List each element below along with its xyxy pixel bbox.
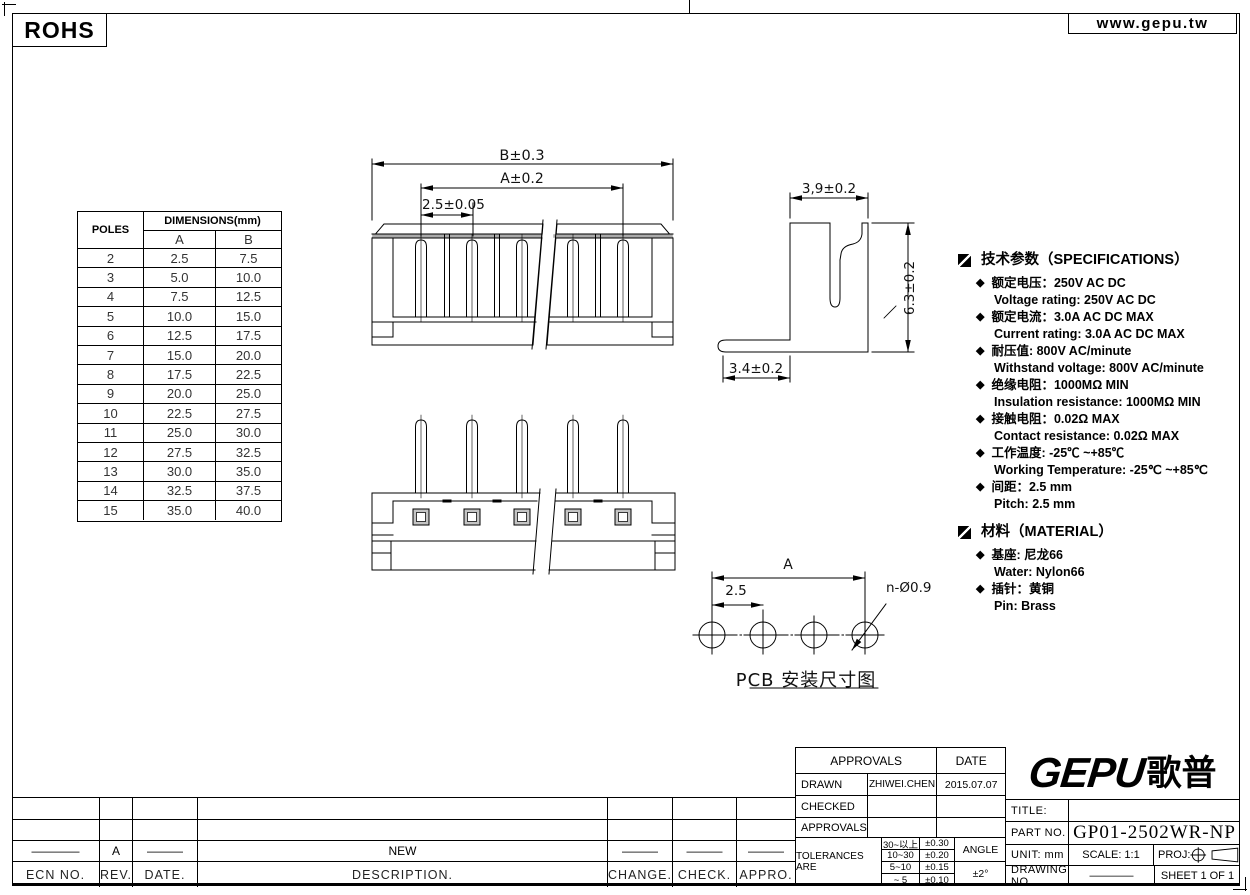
revision-value-cell: ———— xyxy=(12,841,100,862)
drawing-sheet: ROHS www.gepu.tw POLES DIMENSIONS(mm) A … xyxy=(0,0,1250,895)
revision-header-cell: DESCRIPTION. xyxy=(198,862,608,887)
poles-cell: 14 xyxy=(78,482,144,501)
material-title: 材料（MATERIAL） xyxy=(981,524,1113,541)
pcb-layout-caption: PCB 安装尺寸图 xyxy=(716,666,896,692)
tolerance-range-cell: 5~10 xyxy=(881,862,919,874)
spec-text-zh: 插针：黄铜 xyxy=(991,581,1054,598)
column-header-dimensions: DIMENSIONS(mm) xyxy=(144,212,281,231)
spec-text-en: Working Temperature: -25℃ ~+85℃ xyxy=(994,462,1248,479)
dim-label-front-pitch: 2.5±0.05 xyxy=(422,197,485,213)
spec-line-zh: ◆额定电流：3.0A AC DC MAX xyxy=(976,309,1248,326)
revision-value-cell: ——— xyxy=(737,841,795,862)
approvals-date xyxy=(937,818,1005,837)
gepu-logo: GEPU 歌普 xyxy=(1006,747,1240,800)
spec-text-zh: 耐压值: 800V AC/minute xyxy=(991,343,1131,360)
dim-a-cell: 35.0 xyxy=(144,501,216,520)
spec-line-zh: ◆插针：黄铜 xyxy=(976,581,1248,598)
revision-empty-cell xyxy=(673,798,737,820)
spec-line-zh: ◆接触电阻：0.02Ω MAX xyxy=(976,411,1248,428)
section-marker-icon xyxy=(958,254,971,267)
dim-b-cell: 22.5 xyxy=(216,365,281,384)
diamond-bullet-icon: ◆ xyxy=(976,309,984,326)
logo-text-en: GEPU xyxy=(1027,752,1146,794)
spec-text-en: Water: Nylon66 xyxy=(994,564,1248,581)
spec-item: ◆额定电压：250V AC DCVoltage rating: 250V AC … xyxy=(976,275,1248,309)
revision-header-cell: ECN NO. xyxy=(12,862,100,887)
connector-front-view xyxy=(372,159,673,349)
dim-a-cell: 7.5 xyxy=(144,288,216,307)
tolerance-range-cell: ~ 5 xyxy=(881,874,919,886)
spec-item: ◆额定电流：3.0A AC DC MAXCurrent rating: 3.0A… xyxy=(976,309,1248,343)
diamond-bullet-icon: ◆ xyxy=(976,377,984,394)
column-header-poles: POLES xyxy=(78,212,144,249)
revision-empty-cell xyxy=(133,820,198,841)
corner-mark xyxy=(4,2,5,16)
tolerance-range-cell: 30~以上 xyxy=(881,838,919,850)
title-block: GEPU 歌普 TITLE: PART NO. GP01-2502WR-NP U… xyxy=(1005,747,1240,886)
poles-cell: 5 xyxy=(78,307,144,326)
title-value xyxy=(1069,800,1240,821)
dim-label-side-depth: 3,9±0.2 xyxy=(779,181,879,197)
dim-label-side-pin-length: 3.4±0.2 xyxy=(706,361,806,377)
website-label: www.gepu.tw xyxy=(1097,15,1209,32)
poles-cell: 12 xyxy=(78,443,144,462)
spec-text-zh: 工作温度: -25℃ ~+85℃ xyxy=(991,445,1124,462)
tolerance-value-cell: ±0.15 xyxy=(919,862,954,874)
pin-view-pins xyxy=(416,415,629,498)
dim-a-cell: 20.0 xyxy=(144,385,216,404)
diamond-bullet-icon: ◆ xyxy=(976,343,984,360)
material-header: 材料（MATERIAL） xyxy=(958,524,1248,541)
approvals-by xyxy=(868,818,938,837)
poles-cell: 6 xyxy=(78,327,144,346)
date-header: DATE xyxy=(937,748,1005,773)
revision-header-cell: CHECK. xyxy=(673,862,737,887)
spec-item: ◆基座: 尼龙66Water: Nylon66 xyxy=(976,547,1248,581)
dim-a-cell: 15.0 xyxy=(144,346,216,365)
connector-side-view xyxy=(718,193,914,382)
spec-text-en: Voltage rating: 250V AC DC xyxy=(994,292,1248,309)
revision-empty-cell xyxy=(608,820,673,841)
revision-value-cell: ——— xyxy=(133,841,198,862)
angle-tolerance: ANGLE ±2° xyxy=(954,838,1006,886)
spec-line-zh: ◆工作温度: -25℃ ~+85℃ xyxy=(976,445,1248,462)
revision-empty-cell xyxy=(100,820,133,841)
diamond-bullet-icon: ◆ xyxy=(976,411,984,428)
tolerance-range-cell: 10~30 xyxy=(881,850,919,862)
drawing-no-label: DRAWING NO. xyxy=(1006,866,1069,886)
rohs-badge: ROHS xyxy=(12,13,107,47)
spec-item: ◆插针：黄铜Pin: Brass xyxy=(976,581,1248,615)
dim-b-cell: 17.5 xyxy=(216,327,281,346)
column-header-b: B xyxy=(216,231,281,249)
dim-b-cell: 15.0 xyxy=(216,307,281,326)
tolerances-label: TOLERANCES ARE xyxy=(796,838,881,886)
revision-header-cell: CHANGE. xyxy=(608,862,673,887)
spec-line-zh: ◆间距：2.5 mm xyxy=(976,479,1248,496)
dim-a-cell: 2.5 xyxy=(144,249,216,268)
specifications-list: ◆额定电压：250V AC DCVoltage rating: 250V AC … xyxy=(958,275,1248,513)
dim-label-side-height: 6.3±0.2 xyxy=(902,248,918,328)
spec-text-zh: 基座: 尼龙66 xyxy=(991,547,1063,564)
drawn-label: DRAWN xyxy=(796,774,868,795)
dim-a-cell: 30.0 xyxy=(144,462,216,481)
specifications-title: 技术参数（SPECIFICATIONS） xyxy=(981,252,1189,269)
material-list: ◆基座: 尼龙66Water: Nylon66◆插针：黄铜Pin: Brass xyxy=(958,547,1248,615)
dim-label-pcb-span: A xyxy=(758,557,818,573)
dim-b-cell: 7.5 xyxy=(216,249,281,268)
proj-label: PROJ: xyxy=(1158,849,1190,861)
column-header-a: A xyxy=(144,231,216,249)
spec-text-zh: 间距：2.5 mm xyxy=(991,479,1072,496)
dim-b-cell: 12.5 xyxy=(216,288,281,307)
spec-line-zh: ◆基座: 尼龙66 xyxy=(976,547,1248,564)
center-mark xyxy=(689,0,690,13)
spec-text-en: Pin: Brass xyxy=(994,598,1248,615)
spec-line-zh: ◆耐压值: 800V AC/minute xyxy=(976,343,1248,360)
dim-label-front-width: B±0.3 xyxy=(432,148,612,164)
revision-empty-cell xyxy=(198,820,608,841)
revision-empty-cell xyxy=(133,798,198,820)
dim-b-cell: 20.0 xyxy=(216,346,281,365)
revision-empty-cell xyxy=(12,798,100,820)
tolerances-grid: 30~以上±0.3010~30±0.205~10±0.15~ 5±0.10 xyxy=(881,838,954,886)
revision-empty-cell xyxy=(673,820,737,841)
projection-cell: PROJ: xyxy=(1154,845,1240,865)
poles-cell: 2 xyxy=(78,249,144,268)
spec-text-en: Current rating: 3.0A AC DC MAX xyxy=(994,326,1248,343)
revision-value-cell: ——— xyxy=(673,841,737,862)
angle-value: ±2° xyxy=(955,862,1006,886)
unit-label: UNIT: mm xyxy=(1006,845,1069,865)
dim-b-cell: 25.0 xyxy=(216,385,281,404)
spec-text-zh: 接触电阻：0.02Ω MAX xyxy=(991,411,1119,428)
part-number: GP01-2502WR-NP xyxy=(1069,822,1240,844)
spec-line-zh: ◆额定电压：250V AC DC xyxy=(976,275,1248,292)
tolerance-value-cell: ±0.20 xyxy=(919,850,954,862)
revision-value-cell: ——— xyxy=(608,841,673,862)
revision-table: ————A———NEW—————————ECN NO.REV.DATE.DESC… xyxy=(12,797,795,886)
poles-dimensions-table: POLES DIMENSIONS(mm) A B 22.57.535.010.0… xyxy=(77,211,282,522)
dim-b-cell: 27.5 xyxy=(216,404,281,423)
diamond-bullet-icon: ◆ xyxy=(976,547,984,564)
dim-b-cell: 10.0 xyxy=(216,268,281,287)
checked-date xyxy=(937,796,1005,817)
spec-text-en: Pitch: 2.5 mm xyxy=(994,496,1248,513)
dim-a-cell: 25.0 xyxy=(144,424,216,443)
tolerance-value-cell: ±0.30 xyxy=(919,838,954,850)
drawn-by: ZHIWEI.CHEN xyxy=(868,774,938,795)
revision-header-cell: DATE. xyxy=(133,862,198,887)
revision-empty-cell xyxy=(737,820,795,841)
corner-mark xyxy=(1245,877,1246,891)
dim-b-cell: 35.0 xyxy=(216,462,281,481)
spec-item: ◆间距：2.5 mmPitch: 2.5 mm xyxy=(976,479,1248,513)
diamond-bullet-icon: ◆ xyxy=(976,479,984,496)
spec-line-zh: ◆绝缘电阻：1000MΩ MIN xyxy=(976,377,1248,394)
checked-by xyxy=(868,796,938,817)
poles-table-body: 22.57.535.010.047.512.5510.015.0612.517.… xyxy=(78,249,281,520)
revision-empty-cell xyxy=(608,798,673,820)
spec-text-en: Insulation resistance: 1000MΩ MIN xyxy=(994,394,1248,411)
revision-value-cell: NEW xyxy=(198,841,608,862)
diamond-bullet-icon: ◆ xyxy=(976,275,984,292)
poles-cell: 3 xyxy=(78,268,144,287)
dim-b-cell: 37.5 xyxy=(216,482,281,501)
sheet-label: SHEET 1 OF 1 xyxy=(1155,866,1240,886)
front-view-pins xyxy=(416,234,629,322)
dim-a-cell: 22.5 xyxy=(144,404,216,423)
revision-empty-cell xyxy=(737,798,795,820)
revision-empty-cell xyxy=(100,798,133,820)
spec-text-zh: 额定电压：250V AC DC xyxy=(991,275,1125,292)
specifications-header: 技术参数（SPECIFICATIONS） xyxy=(958,252,1248,269)
dim-b-cell: 32.5 xyxy=(216,443,281,462)
pin-view-holes xyxy=(413,509,631,525)
spec-text-zh: 绝缘电阻：1000MΩ MIN xyxy=(991,377,1128,394)
poles-cell: 4 xyxy=(78,288,144,307)
angle-label: ANGLE xyxy=(955,838,1006,862)
tolerances-table: TOLERANCES ARE 30~以上±0.3010~30±0.205~10±… xyxy=(795,838,1005,886)
poles-cell: 9 xyxy=(78,385,144,404)
rohs-label: ROHS xyxy=(24,17,94,44)
revision-header-cell: REV. xyxy=(100,862,133,887)
poles-cell: 13 xyxy=(78,462,144,481)
technical-drawings xyxy=(350,140,960,710)
diamond-bullet-icon: ◆ xyxy=(976,445,984,462)
dim-label-front-pin-span: A±0.2 xyxy=(432,171,612,187)
tolerance-value-cell: ±0.10 xyxy=(919,874,954,886)
revision-value-cell: A xyxy=(100,841,133,862)
part-no-label: PART NO. xyxy=(1006,822,1069,844)
dim-label-pcb-pitch: 2.5 xyxy=(710,583,762,599)
projection-symbol xyxy=(1190,846,1240,864)
logo-text-zh: 歌普 xyxy=(1147,756,1217,791)
revision-empty-cell xyxy=(12,820,100,841)
dim-a-cell: 27.5 xyxy=(144,443,216,462)
scale-label: SCALE: 1:1 xyxy=(1069,845,1154,865)
checked-label: CHECKED xyxy=(796,796,868,817)
spec-item: ◆接触电阻：0.02Ω MAXContact resistance: 0.02Ω… xyxy=(976,411,1248,445)
dim-b-cell: 40.0 xyxy=(216,501,281,520)
spec-text-en: Contact resistance: 0.02Ω MAX xyxy=(994,428,1248,445)
approvals-table: APPROVALS DATE DRAWN ZHIWEI.CHEN 2015.07… xyxy=(795,747,1005,838)
dim-a-cell: 32.5 xyxy=(144,482,216,501)
dim-b-cell: 30.0 xyxy=(216,424,281,443)
dim-a-cell: 17.5 xyxy=(144,365,216,384)
drawn-date: 2015.07.07 xyxy=(937,774,1005,795)
spec-item: ◆耐压值: 800V AC/minuteWithstand voltage: 8… xyxy=(976,343,1248,377)
spec-item: ◆绝缘电阻：1000MΩ MINInsulation resistance: 1… xyxy=(976,377,1248,411)
specifications-panel: 技术参数（SPECIFICATIONS） ◆额定电压：250V AC DCVol… xyxy=(958,252,1248,615)
poles-cell: 7 xyxy=(78,346,144,365)
revision-empty-cell xyxy=(198,798,608,820)
poles-cell: 8 xyxy=(78,365,144,384)
drawing-no-value: ———— xyxy=(1069,866,1155,886)
spec-item: ◆工作温度: -25℃ ~+85℃Working Temperature: -2… xyxy=(976,445,1248,479)
spec-text-zh: 额定电流：3.0A AC DC MAX xyxy=(991,309,1153,326)
spec-text-en: Withstand voltage: 800V AC/minute xyxy=(994,360,1248,377)
dim-label-pcb-hole-diameter: n-Ø0.9 xyxy=(886,580,932,596)
approvals-header: APPROVALS xyxy=(796,748,937,773)
dim-a-cell: 5.0 xyxy=(144,268,216,287)
website-box: www.gepu.tw xyxy=(1068,13,1237,34)
connector-pin-view xyxy=(372,415,675,574)
poles-cell: 10 xyxy=(78,404,144,423)
side-view-dimensions xyxy=(723,193,914,382)
poles-cell: 15 xyxy=(78,501,144,520)
revision-header-cell: APPRO. xyxy=(737,862,795,887)
section-marker-icon xyxy=(958,526,971,539)
dim-a-cell: 12.5 xyxy=(144,327,216,346)
diamond-bullet-icon: ◆ xyxy=(976,581,984,598)
approvals-label: APPROVALS xyxy=(796,818,868,837)
title-label: TITLE: xyxy=(1006,800,1069,821)
dim-a-cell: 10.0 xyxy=(144,307,216,326)
poles-cell: 11 xyxy=(78,424,144,443)
